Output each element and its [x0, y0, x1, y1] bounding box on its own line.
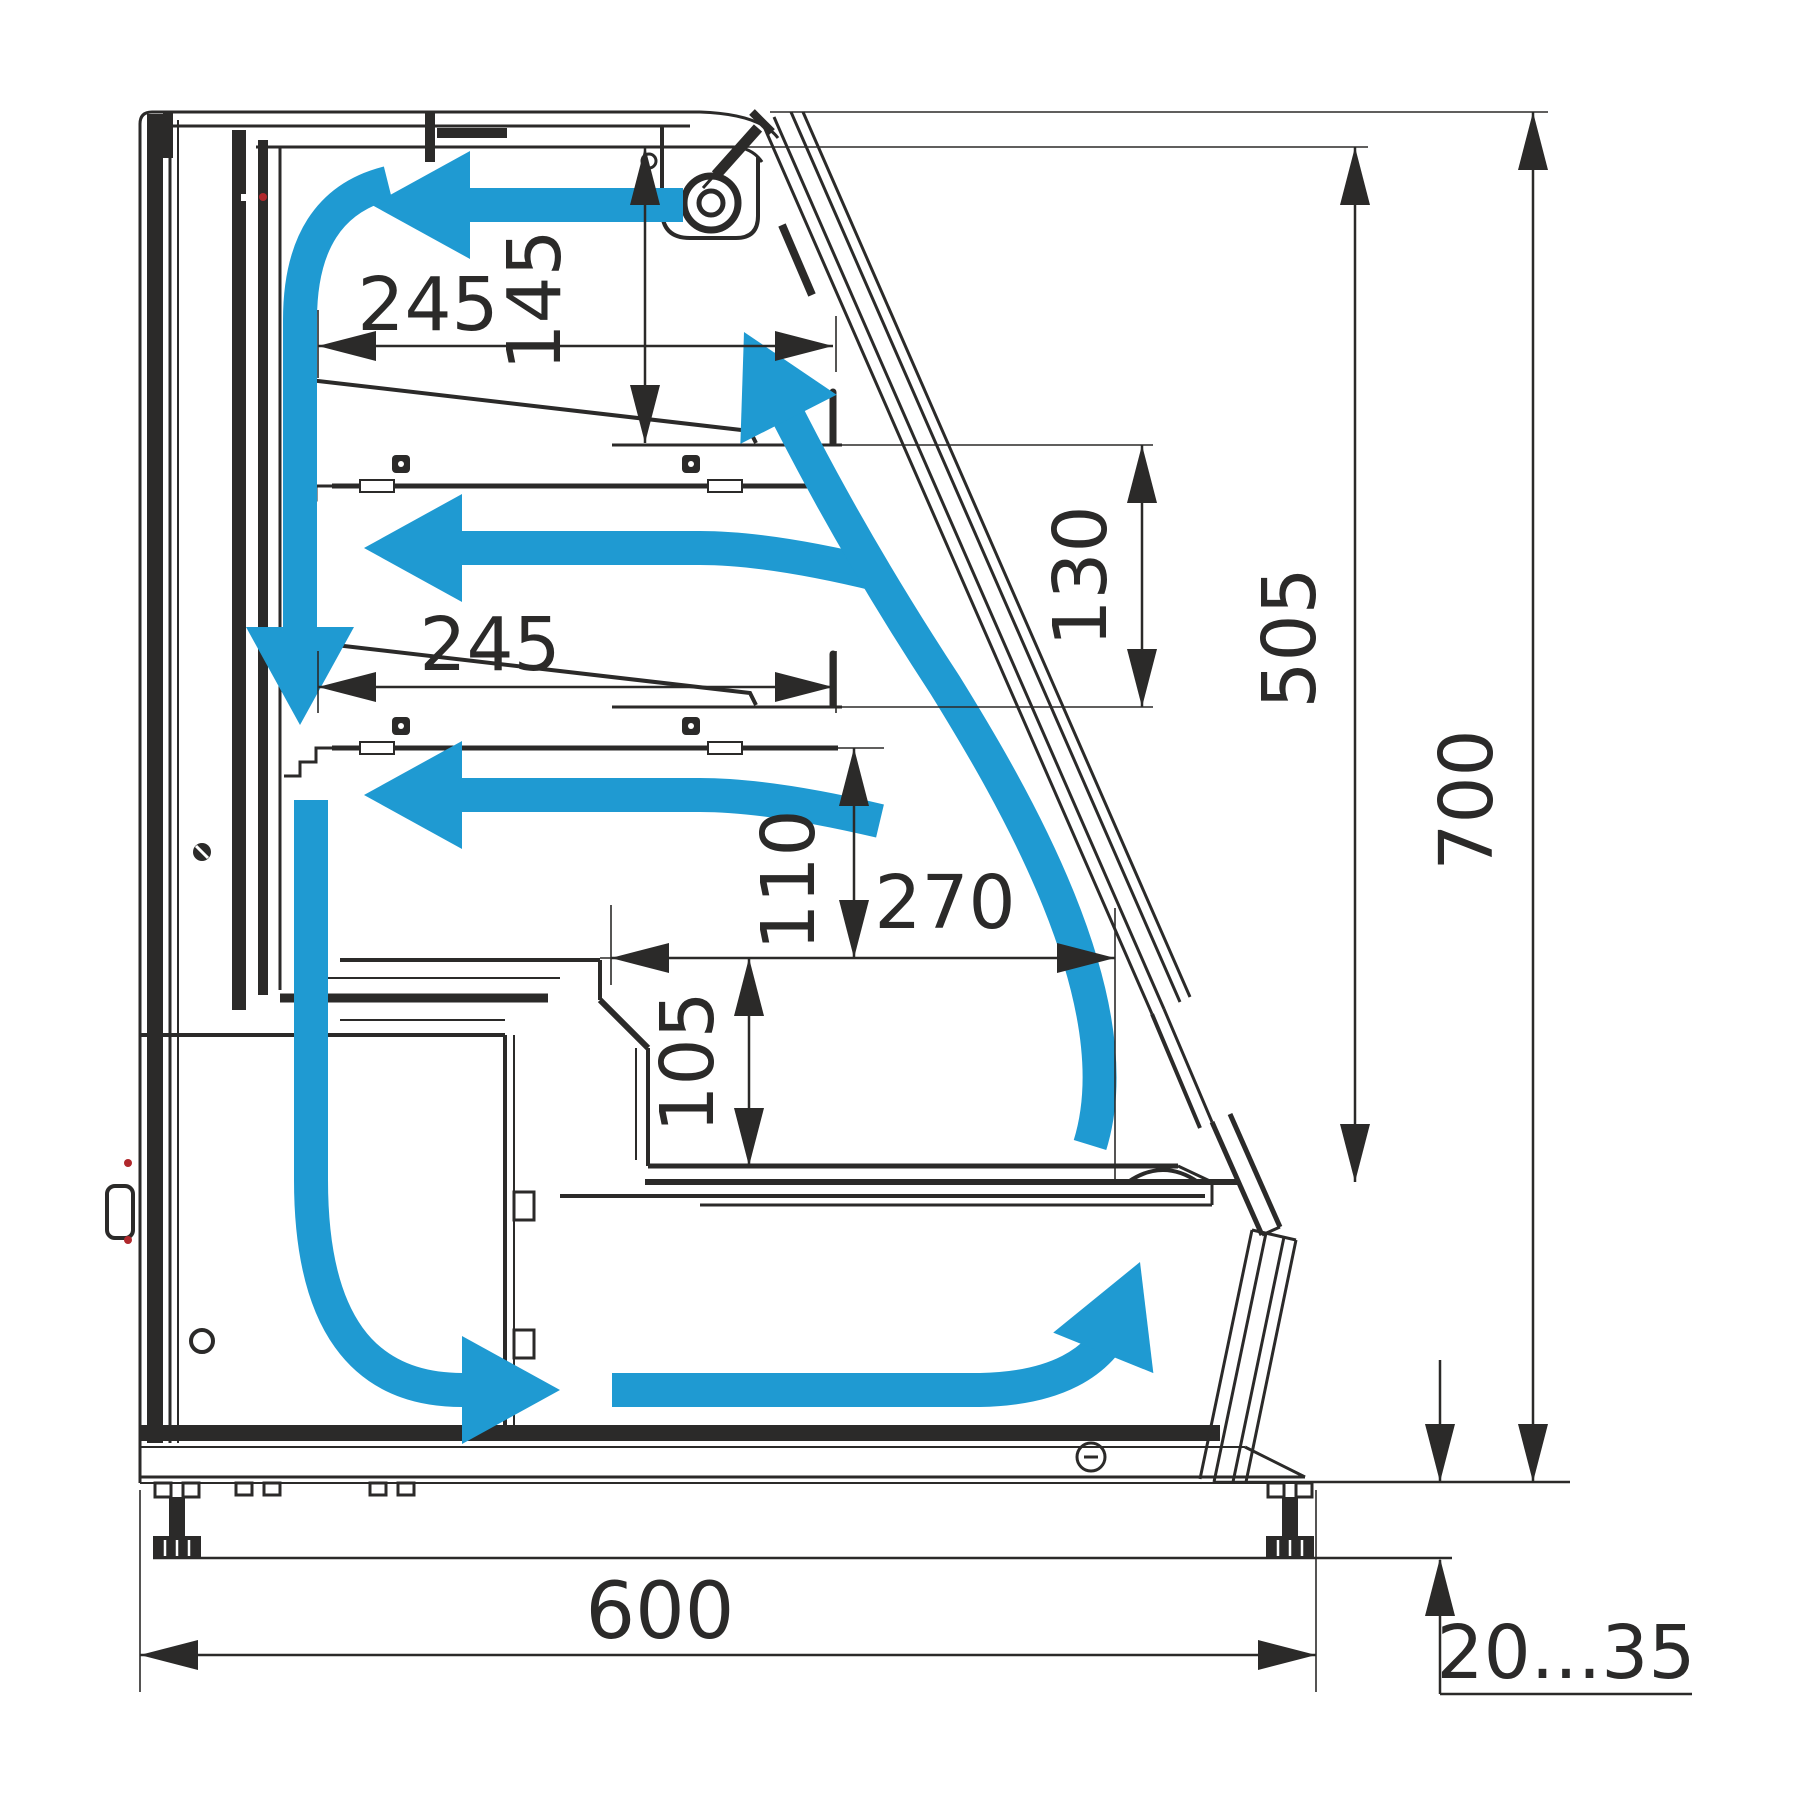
- dimension-well-depth: 105: [645, 958, 764, 1166]
- dimension-ground-clearance: 20...35: [1425, 1360, 1695, 1696]
- dim-label-shelf-spacing: 130: [1038, 505, 1124, 646]
- adjustable-foot: [153, 1483, 201, 1558]
- dim-label-body-depth: 600: [586, 1567, 735, 1657]
- airflow-arrow-shelf-upper: [364, 494, 880, 602]
- dimension-shelf-depth-lower: 245: [318, 602, 836, 713]
- dim-label-ground-clearance: 20...35: [1437, 1610, 1696, 1696]
- shelf-lower: [284, 640, 842, 776]
- dimensions: 245 145 245 130: [140, 112, 1695, 1696]
- airflow-arrow-into-base: [311, 800, 560, 1444]
- airflow-arrow-bottom-channel: [612, 1242, 1190, 1390]
- diagram-canvas: 245 145 245 130: [0, 0, 1800, 1813]
- dim-label-interior-height: 505: [1247, 567, 1333, 708]
- dimension-interior-height: 505: [1247, 147, 1370, 1182]
- dim-label-overall-height: 700: [1424, 729, 1510, 870]
- glass-sill: [1128, 1009, 1280, 1235]
- dim-label-well-depth: 105: [645, 991, 731, 1132]
- adjustable-foot: [1266, 1483, 1314, 1558]
- top-canopy: [152, 112, 1548, 162]
- dim-label-deck-clearance: 110: [746, 809, 832, 950]
- compartment-latch: [107, 1158, 150, 1252]
- dimension-overall-height: 700: [1424, 112, 1548, 1482]
- sensor-dot: [259, 193, 267, 201]
- mounting-tabs: [236, 1483, 414, 1495]
- dimension-body-depth: 600: [140, 1490, 1316, 1692]
- dim-label-shelf-clearance-top: 145: [492, 229, 578, 370]
- dim-label-shelf-depth-upper: 245: [357, 262, 498, 348]
- display-case-cross-section-diagram: 245 145 245 130: [0, 0, 1800, 1813]
- dim-label-well-length: 270: [874, 860, 1015, 946]
- base: [140, 1441, 1570, 1558]
- dim-label-shelf-depth-lower: 245: [419, 602, 560, 688]
